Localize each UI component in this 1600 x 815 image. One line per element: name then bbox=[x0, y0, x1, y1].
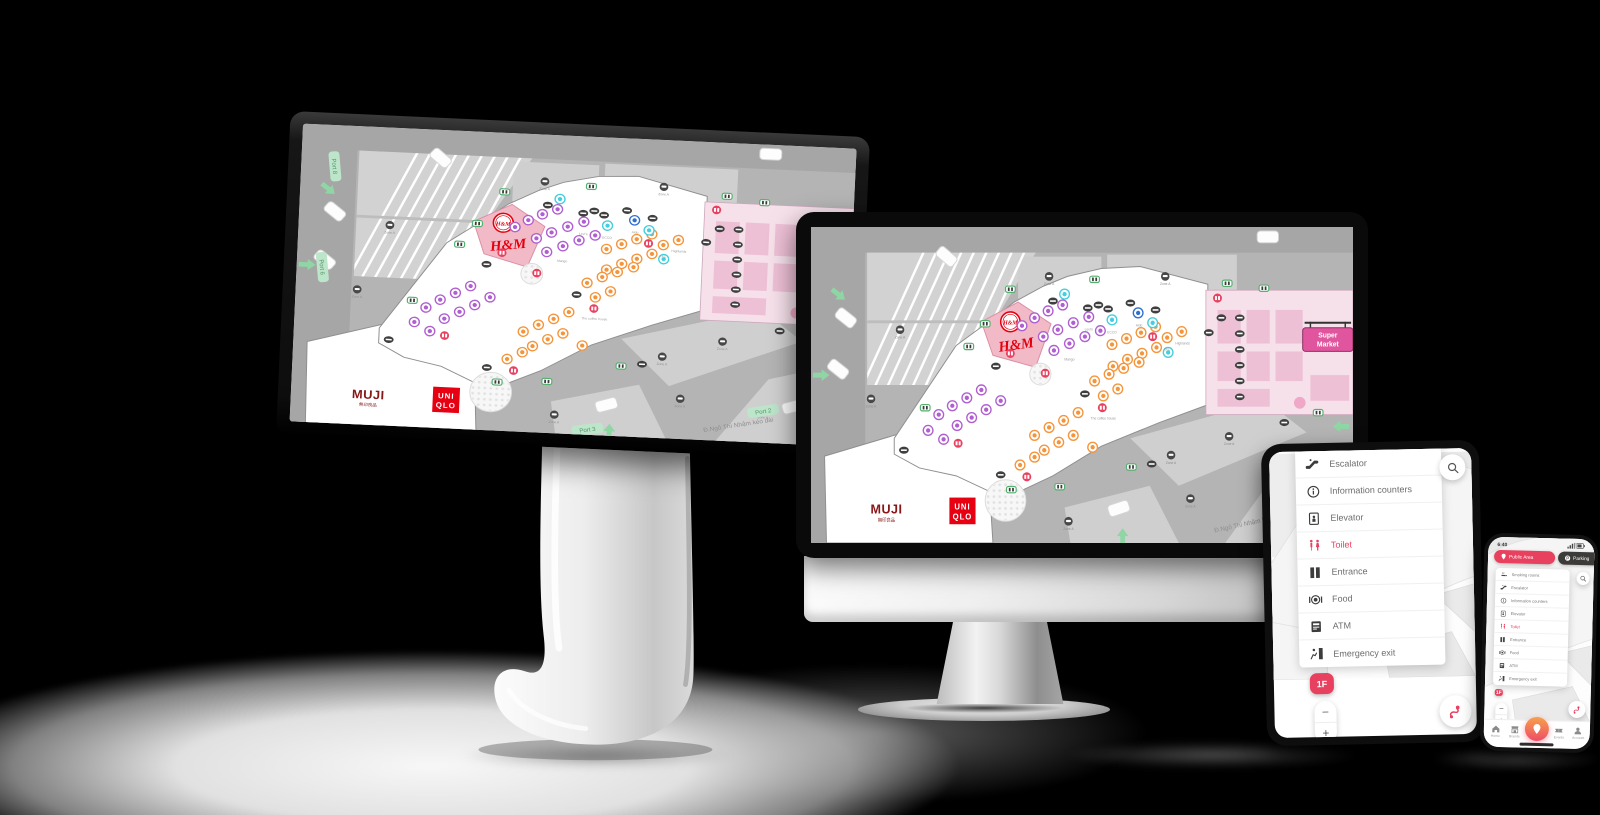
tablet-shadow bbox=[1062, 742, 1362, 768]
svg-text:Zone A: Zone A bbox=[1063, 527, 1074, 531]
elevator-icon bbox=[1500, 610, 1507, 617]
emergency-icon bbox=[1498, 675, 1505, 682]
escalator-icon bbox=[1305, 457, 1320, 472]
zoom-in-button[interactable]: + bbox=[1315, 722, 1337, 738]
legend-label: Food bbox=[1332, 593, 1353, 603]
food-icon bbox=[1308, 592, 1323, 607]
monitor-neck bbox=[934, 618, 1066, 704]
events-icon bbox=[1554, 725, 1564, 735]
search-icon bbox=[1580, 575, 1587, 582]
legend-label: Escalator bbox=[1329, 458, 1367, 469]
legend-item-toilet[interactable]: Toilet bbox=[1297, 530, 1444, 560]
legend-item-escalator[interactable]: Escalator bbox=[1295, 449, 1442, 479]
elevator-icon bbox=[1306, 511, 1321, 526]
status-time: 6:40 bbox=[1497, 541, 1507, 547]
chip-label: Parking bbox=[1573, 556, 1589, 562]
brands-icon bbox=[1510, 724, 1520, 734]
svg-text:H&M: H&M bbox=[1002, 321, 1018, 327]
svg-text:UNI: UNI bbox=[954, 502, 970, 511]
svg-text:ECCO: ECCO bbox=[602, 236, 612, 240]
legend-label: Emergency exit bbox=[1509, 677, 1537, 682]
legend-label: ATM bbox=[1333, 620, 1352, 630]
zoom-out-button[interactable]: − bbox=[1314, 701, 1336, 722]
svg-text:Zone A: Zone A bbox=[1160, 282, 1171, 286]
mall-map[interactable]: SuperMarketH&MH&MMUJI無印良品UNIQLOMangoLevi… bbox=[290, 124, 857, 447]
nav-label: Events bbox=[1554, 735, 1564, 739]
svg-text:Zone A: Zone A bbox=[674, 404, 686, 408]
svg-text:Zone A: Zone A bbox=[548, 420, 560, 424]
svg-text:H&M: H&M bbox=[495, 221, 512, 228]
nav-item-events[interactable]: Events bbox=[1550, 725, 1568, 744]
svg-text:Zone A: Zone A bbox=[1044, 282, 1055, 286]
svg-text:Zone A: Zone A bbox=[539, 187, 551, 191]
svg-text:Zone A: Zone A bbox=[658, 192, 670, 196]
home-icon bbox=[1490, 724, 1500, 734]
legend-label: Information counters bbox=[1511, 598, 1548, 603]
chip-label: Public Area bbox=[1509, 554, 1533, 560]
legend-label: Entrance bbox=[1331, 566, 1367, 577]
svg-text:The coffee house: The coffee house bbox=[1091, 417, 1116, 421]
entrance-icon bbox=[1499, 636, 1506, 643]
svg-text:KFC: KFC bbox=[659, 254, 667, 258]
route-icon bbox=[1447, 703, 1464, 720]
legend-item-entrance[interactable]: Entrance bbox=[1297, 557, 1444, 587]
phone-legend-panel: Smoking roomsEscalatorInformation counte… bbox=[1493, 568, 1570, 687]
route-button[interactable] bbox=[1439, 695, 1472, 728]
escalator-icon bbox=[1500, 584, 1507, 591]
svg-text:KFC: KFC bbox=[1164, 347, 1171, 351]
emergency-icon bbox=[1309, 646, 1324, 661]
svg-text:Zone A: Zone A bbox=[717, 347, 729, 351]
account-icon bbox=[1573, 726, 1583, 736]
svg-text:Zone A: Zone A bbox=[1185, 504, 1196, 508]
kiosk-display: SuperMarketH&MH&MMUJI無印良品UNIQLOMangoLevi… bbox=[276, 111, 870, 461]
nav-item-home[interactable]: Home bbox=[1486, 724, 1504, 743]
phone-screen[interactable]: 6:40 Public AreaParkingStores Smoking ro… bbox=[1483, 537, 1594, 750]
info-icon bbox=[1306, 484, 1321, 499]
food-icon bbox=[1499, 649, 1506, 656]
svg-text:H&M: H&M bbox=[488, 236, 528, 255]
floor-badge[interactable]: 1F bbox=[1495, 689, 1503, 696]
smartphone-device: 6:40 Public AreaParkingStores Smoking ro… bbox=[1479, 533, 1598, 754]
svg-text:Mango: Mango bbox=[1064, 357, 1074, 361]
pin-icon bbox=[1531, 722, 1543, 734]
svg-text:無印良品: 無印良品 bbox=[878, 516, 896, 523]
tablet-legend-panel: EscalatorInformation countersElevatorToi… bbox=[1295, 448, 1446, 668]
status-icons bbox=[1567, 543, 1585, 549]
floor-badge[interactable]: 1F bbox=[1310, 673, 1334, 694]
nav-label: Account bbox=[1572, 736, 1584, 740]
info-icon bbox=[1500, 597, 1507, 604]
svg-text:Mango: Mango bbox=[557, 259, 568, 263]
legend-label: Elevator bbox=[1511, 611, 1526, 616]
svg-text:Zone A: Zone A bbox=[1166, 461, 1177, 465]
route-icon bbox=[1572, 704, 1582, 714]
pin-icon bbox=[1500, 553, 1507, 560]
atm-icon bbox=[1498, 662, 1505, 669]
svg-text:Zone A: Zone A bbox=[1224, 442, 1235, 446]
legend-item-info[interactable]: Information counters bbox=[1296, 476, 1443, 506]
svg-text:Zone A: Zone A bbox=[384, 230, 396, 234]
zoom-controls: − + bbox=[1314, 701, 1337, 738]
legend-label: Toilet bbox=[1510, 624, 1519, 629]
legend-label: Elevator bbox=[1330, 512, 1363, 523]
svg-text:Levi's: Levi's bbox=[579, 232, 588, 236]
svg-text:QLO: QLO bbox=[953, 512, 973, 521]
toilet-icon bbox=[1307, 538, 1322, 553]
legend-label: Emergency exit bbox=[1333, 647, 1395, 658]
chip-public-area[interactable]: Public Area bbox=[1494, 550, 1556, 564]
legend-item-food[interactable]: Food bbox=[1298, 584, 1445, 614]
legend-item-emergency[interactable]: Emergency exit bbox=[1493, 672, 1567, 687]
zoom-out-button[interactable]: − bbox=[1495, 703, 1507, 714]
legend-label: Toilet bbox=[1331, 539, 1352, 549]
svg-text:MUJI: MUJI bbox=[352, 387, 385, 402]
kiosk-stand bbox=[445, 420, 765, 765]
legend-label: Entrance bbox=[1510, 637, 1526, 642]
legend-item-atm[interactable]: ATM bbox=[1298, 611, 1445, 641]
battery-icon bbox=[1576, 543, 1585, 549]
svg-text:QLO: QLO bbox=[436, 401, 457, 411]
entrance-icon bbox=[1307, 565, 1322, 580]
legend-label: Smoking rooms bbox=[1512, 572, 1540, 577]
nav-item-brands[interactable]: Brands bbox=[1505, 724, 1523, 743]
nav-label: Home bbox=[1491, 734, 1500, 738]
svg-text:Zone A: Zone A bbox=[351, 295, 363, 299]
svg-text:Market: Market bbox=[1317, 341, 1340, 348]
kiosk-map-screen[interactable]: SuperMarketH&MH&MMUJI無印良品UNIQLOMangoLevi… bbox=[290, 124, 857, 447]
legend-label: Escalator bbox=[1511, 585, 1528, 590]
atm-icon bbox=[1309, 619, 1324, 634]
svg-text:Super: Super bbox=[1318, 333, 1337, 340]
svg-text:Aldo: Aldo bbox=[1136, 324, 1143, 328]
legend-label: Information counters bbox=[1330, 484, 1412, 496]
legend-item-elevator[interactable]: Elevator bbox=[1296, 503, 1443, 533]
map-pin-button[interactable] bbox=[1525, 716, 1550, 741]
nav-label: Brands bbox=[1509, 734, 1520, 738]
toilet-icon bbox=[1499, 623, 1506, 630]
smoking-icon bbox=[1501, 571, 1508, 578]
nav-item-account[interactable]: Account bbox=[1569, 726, 1587, 745]
parking-icon bbox=[1564, 555, 1571, 562]
svg-text:Aldo: Aldo bbox=[632, 230, 639, 234]
svg-text:Zone A: Zone A bbox=[866, 405, 877, 409]
mockup-scene: SuperMarketH&MH&MMUJI無印良品UNIQLOMangoLevi… bbox=[0, 0, 1600, 815]
legend-item-emergency[interactable]: Emergency exit bbox=[1299, 638, 1446, 668]
tablet-screen[interactable]: EscalatorInformation countersElevatorToi… bbox=[1269, 448, 1477, 738]
svg-text:Zone A: Zone A bbox=[656, 362, 668, 366]
svg-text:ECCO: ECCO bbox=[1107, 331, 1117, 335]
signal-icon bbox=[1567, 543, 1575, 549]
legend-label: ATM bbox=[1509, 663, 1517, 668]
svg-text:Levi's: Levi's bbox=[1085, 328, 1094, 332]
legend-label: Food bbox=[1510, 650, 1519, 655]
svg-text:UNI: UNI bbox=[438, 391, 455, 400]
svg-text:Highlands: Highlands bbox=[671, 249, 686, 254]
svg-text:MUJI: MUJI bbox=[870, 501, 902, 516]
tablet-device: EscalatorInformation countersElevatorToi… bbox=[1261, 440, 1485, 746]
search-icon bbox=[1446, 461, 1459, 474]
chip-parking[interactable]: Parking bbox=[1558, 551, 1594, 565]
svg-text:Highlands: Highlands bbox=[1175, 341, 1190, 345]
svg-text:Zone A: Zone A bbox=[895, 336, 906, 340]
